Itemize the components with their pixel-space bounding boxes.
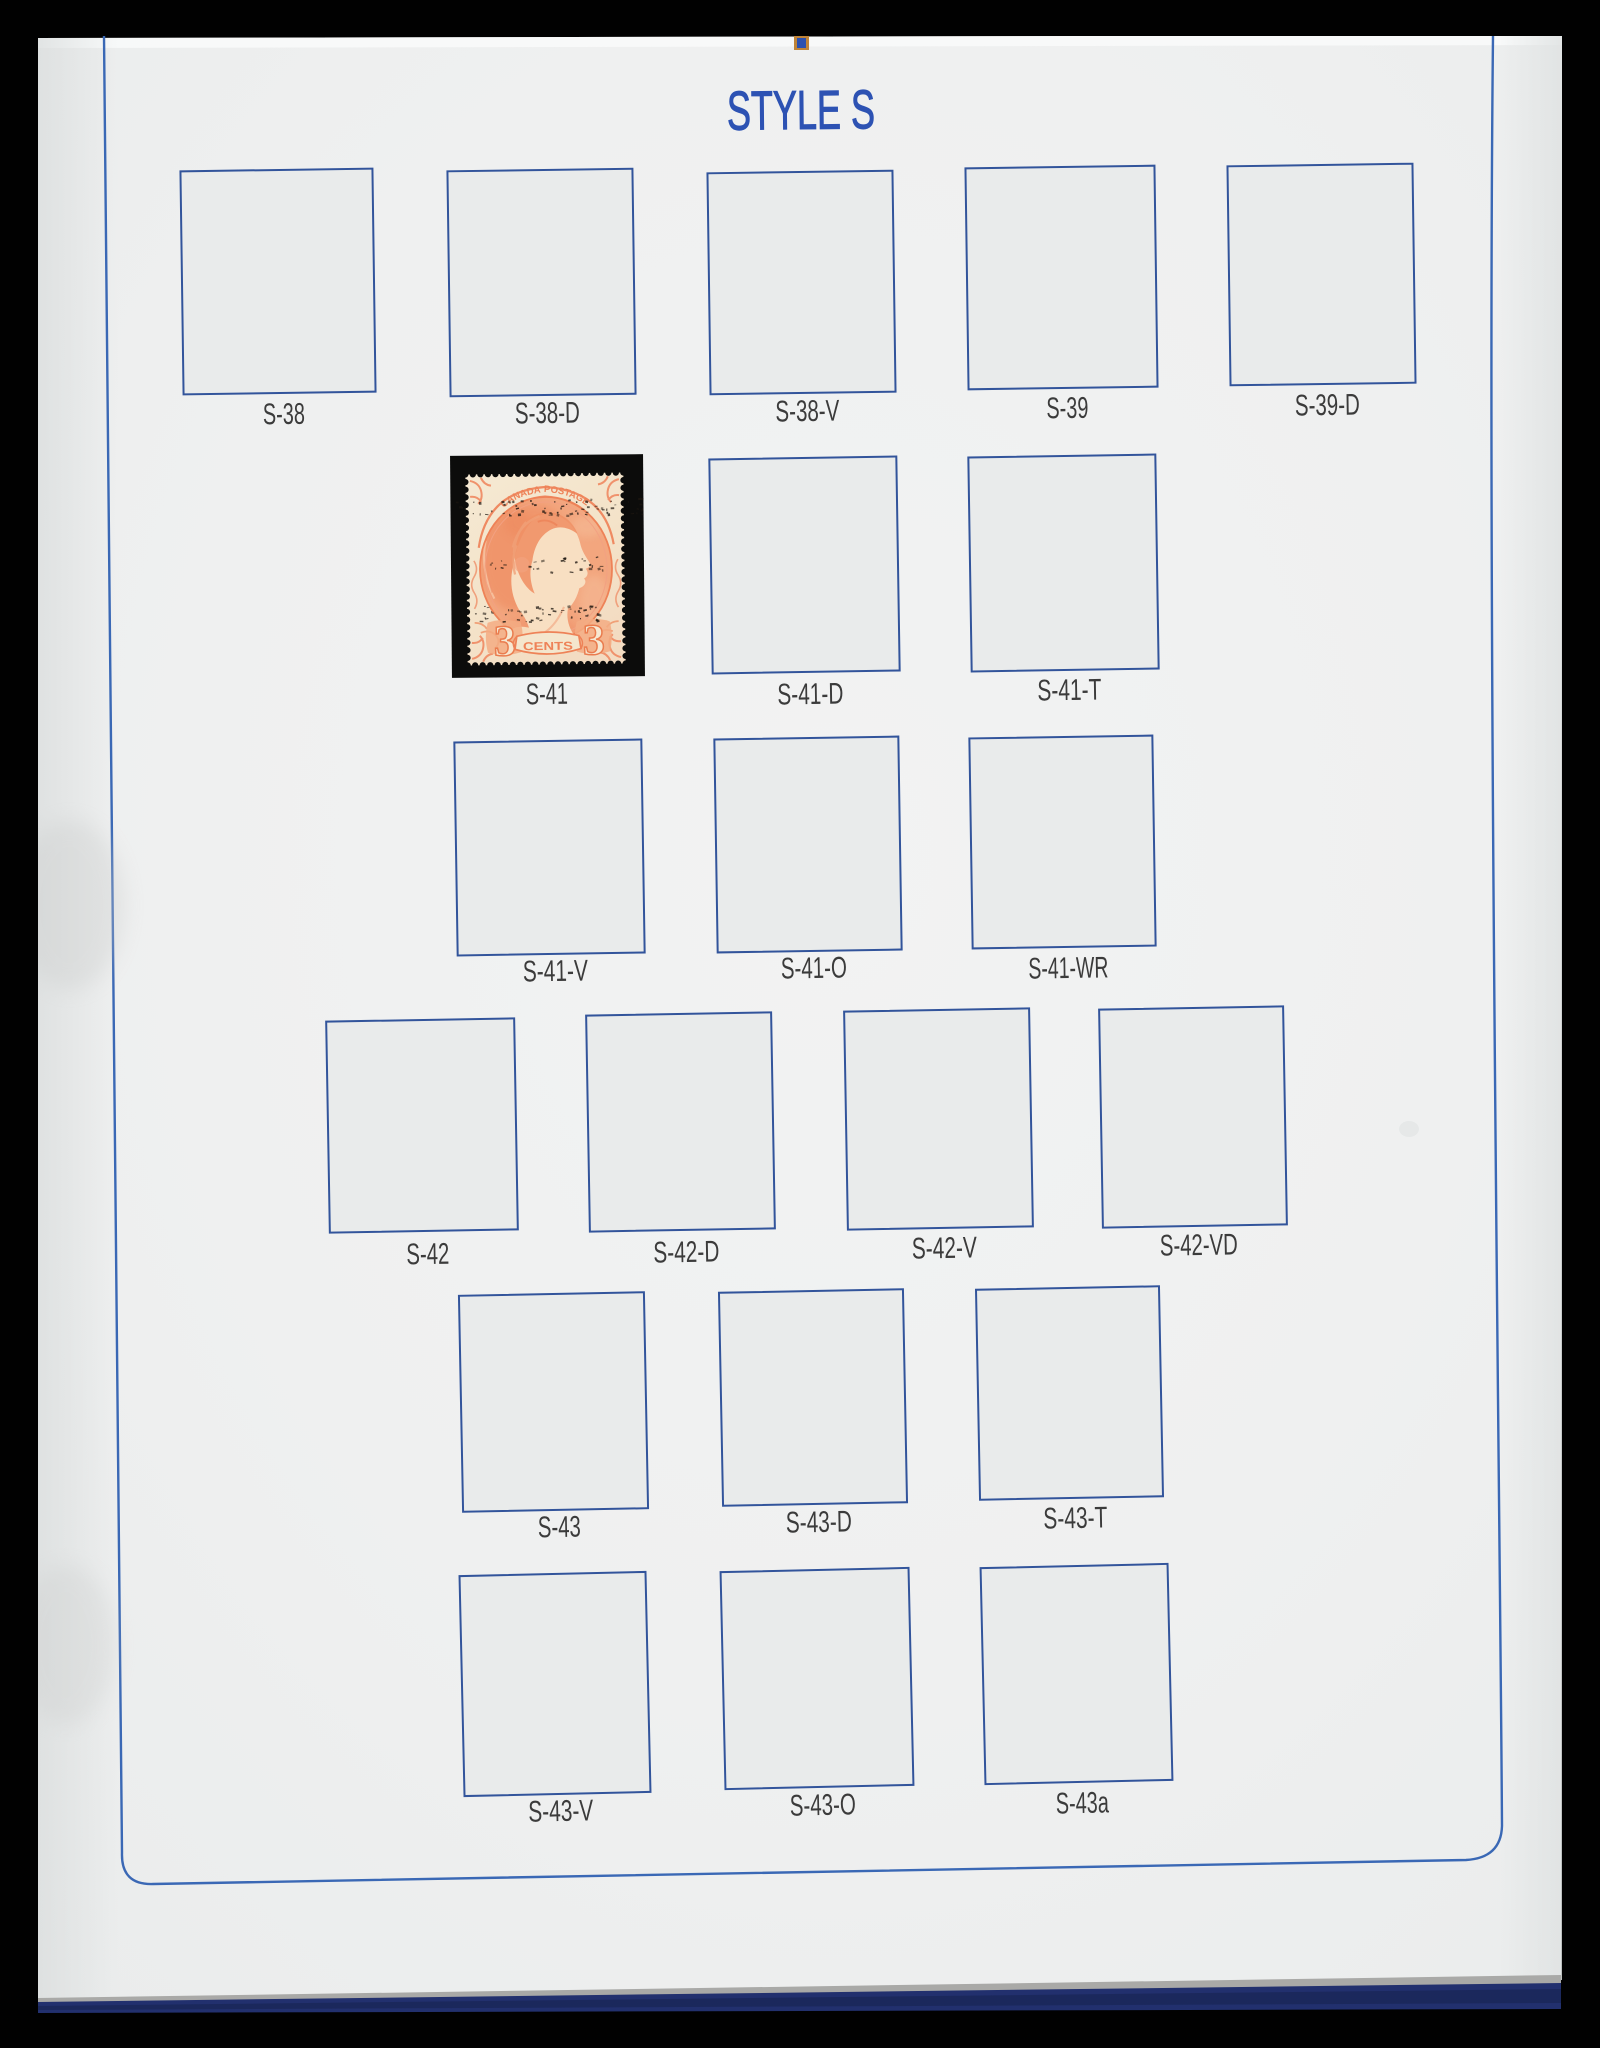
svg-text:S-41-O: S-41-O [781,951,848,985]
svg-text:S-41-WR: S-41-WR [1028,951,1109,985]
svg-text:S-39: S-39 [1046,392,1088,426]
svg-text:S-43-V: S-43-V [528,1794,594,1828]
svg-text:S-43-T: S-43-T [1043,1501,1108,1535]
svg-text:S-41: S-41 [526,678,569,712]
svg-text:S-43: S-43 [538,1511,582,1545]
svg-text:S-42: S-42 [406,1238,450,1272]
svg-text:S-42-D: S-42-D [653,1235,720,1269]
svg-text:S-43-D: S-43-D [786,1505,853,1539]
svg-text:S-43-O: S-43-O [789,1788,856,1822]
svg-text:S-38-V: S-38-V [775,395,839,429]
svg-text:S-43a: S-43a [1055,1786,1109,1820]
svg-text:S-42-V: S-42-V [912,1231,978,1265]
svg-text:S-41-V: S-41-V [523,954,589,988]
svg-text:S-41-D: S-41-D [777,677,844,711]
svg-text:S-42-VD: S-42-VD [1160,1228,1239,1262]
svg-text:CENTS: CENTS [523,641,574,654]
svg-text:STYLE S: STYLE S [727,78,876,142]
svg-text:3: 3 [583,615,606,664]
svg-text:S-41-T: S-41-T [1037,674,1102,708]
svg-text:S-38-D: S-38-D [515,397,580,431]
svg-text:S-38: S-38 [263,398,305,432]
svg-text:S-39-D: S-39-D [1295,389,1360,423]
svg-text:3: 3 [494,616,517,665]
